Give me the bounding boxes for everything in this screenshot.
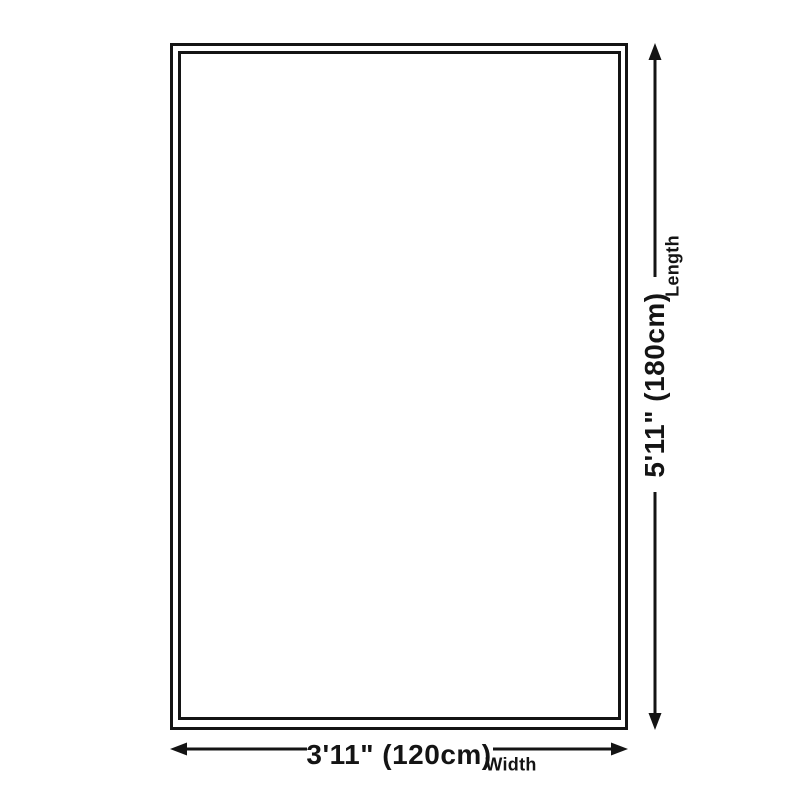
arrowhead-left-icon: [170, 743, 187, 756]
length-dimension-value: 5'11" (180cm): [639, 292, 671, 477]
arrowhead-down-icon: [649, 713, 662, 730]
rug-outline-outer: [170, 43, 628, 730]
width-dimension-label: Width: [485, 755, 536, 776]
length-dimension-label: Length: [663, 235, 684, 297]
rug-outline-inner: [178, 51, 621, 720]
rug-size-diagram: 5'11" (180cm) Length 3'11" (120cm) Width: [0, 0, 800, 800]
arrowhead-right-icon: [611, 743, 628, 756]
arrowhead-up-icon: [649, 43, 662, 60]
width-dimension-value: 3'11" (120cm): [306, 739, 491, 771]
